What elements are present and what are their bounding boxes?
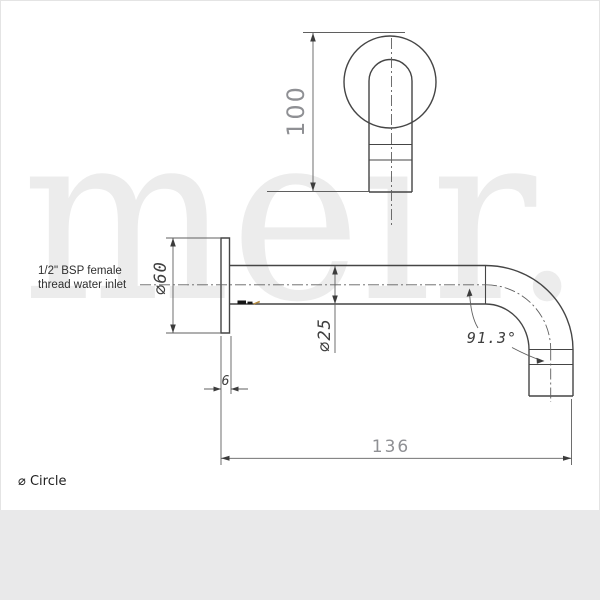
dim-label-dia25: ⌀25 [315,318,335,352]
inlet-annotation: 1/2" BSP female thread water inlet [38,264,178,292]
arrowhead-right-icon [537,358,545,364]
dim-label-136: 136 [372,437,410,457]
shape-variant-label: ⌀ Circle [18,474,66,489]
arrowhead-right-icon [214,387,222,392]
inlet-annotation-line2: thread water inlet [38,278,178,292]
product-drawing-page: meır. 100 [0,0,600,600]
thread-mark-1 [238,301,247,305]
dim-label-6: 6 [222,374,231,389]
arrowhead-up-icon [310,33,316,42]
dimension-136: 136 [221,399,572,465]
thread-mark-2 [248,302,253,305]
arrowhead-left-icon [231,387,239,392]
dimension-6: 6 [204,336,248,465]
arrowhead-right-icon [563,456,572,461]
footer-band: meır.® Designed with the assistance of l… [0,510,600,600]
inlet-annotation-line1: 1/2" BSP female [38,264,178,278]
dim-label-100: 100 [282,85,310,137]
arrowhead-left-icon [221,456,230,461]
dim-label-angle: 91.3° [467,329,517,347]
spout-top-arc [369,59,412,81]
